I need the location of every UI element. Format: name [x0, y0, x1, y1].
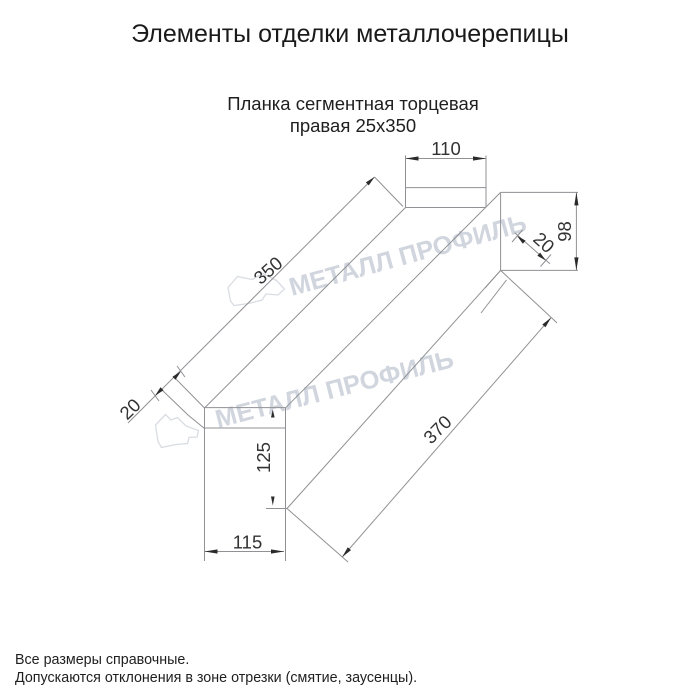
svg-text:370: 370	[419, 411, 456, 448]
svg-text:125: 125	[253, 442, 274, 473]
svg-text:115: 115	[233, 532, 263, 553]
svg-text:350: 350	[249, 252, 286, 288]
svg-text:98: 98	[554, 221, 575, 242]
svg-text:МЕТАЛЛ ПРОФИЛЬ: МЕТАЛЛ ПРОФИЛЬ	[286, 209, 530, 301]
svg-text:110: 110	[431, 138, 461, 159]
svg-text:20: 20	[115, 394, 144, 423]
